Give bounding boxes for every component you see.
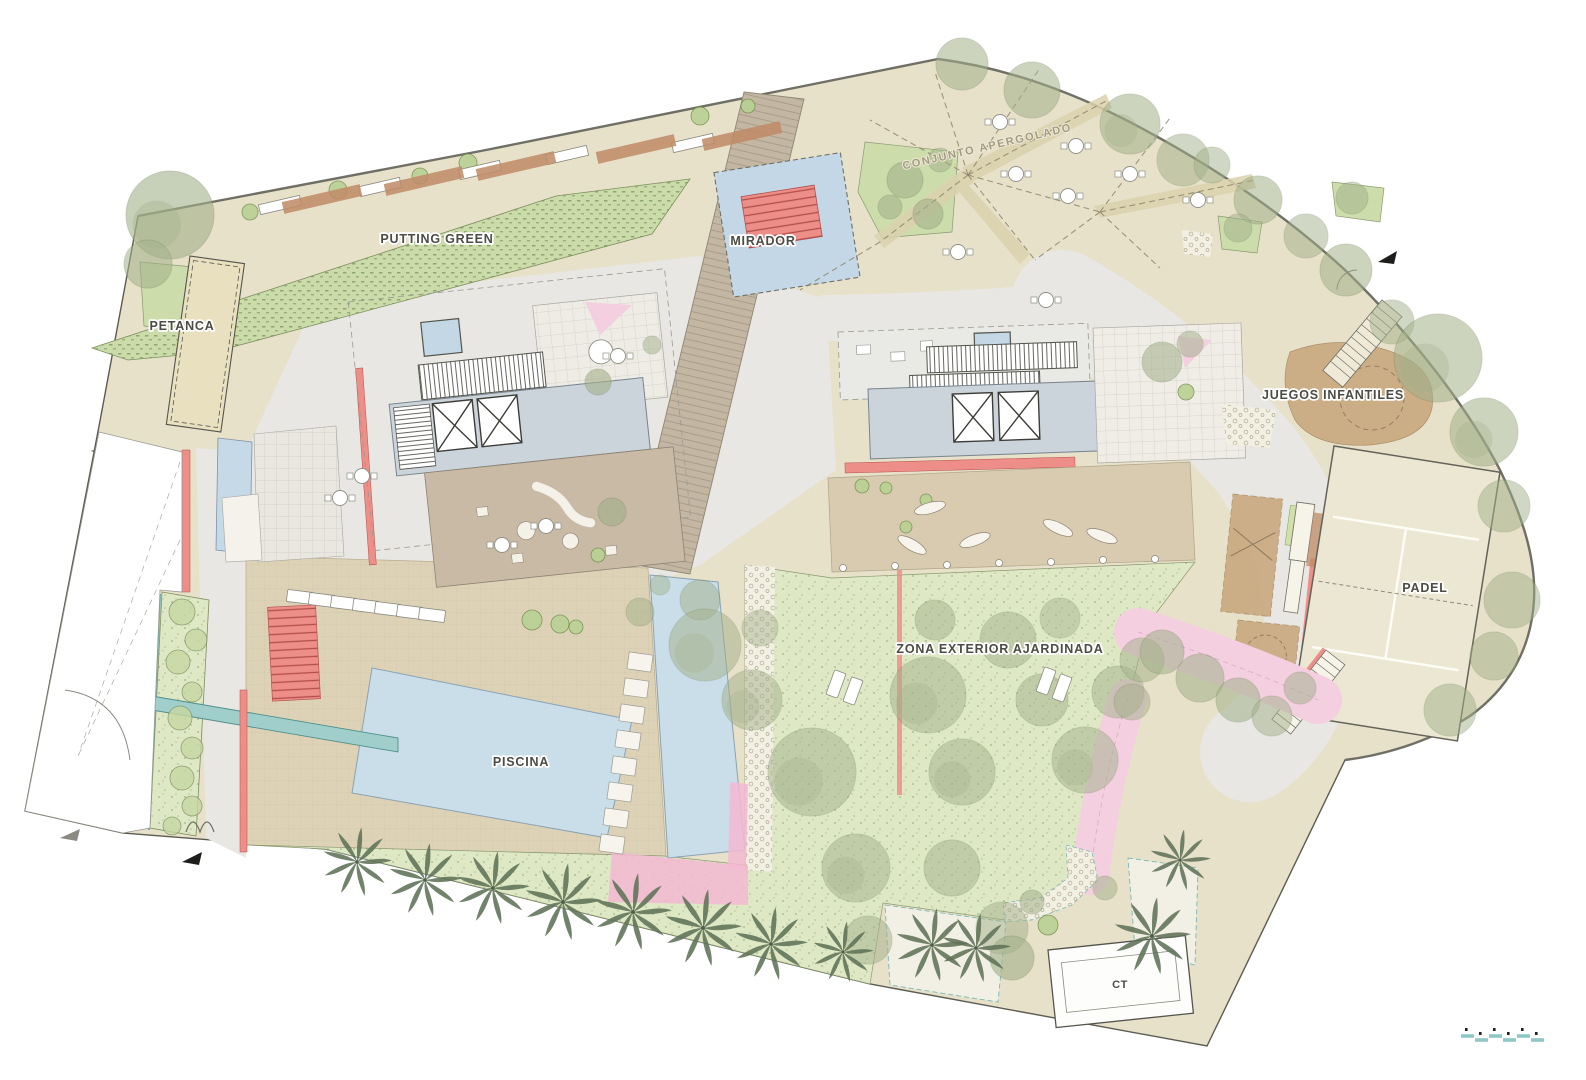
hedge-shrub [182,796,202,816]
palm-trunk [930,943,934,947]
hedge-shrub [163,817,181,835]
tree-canopy [878,195,902,219]
entrance-arrow-grey [60,829,80,841]
hedge-shrub [181,737,203,759]
building1-west-terrace-grid [254,426,344,562]
chair [1077,193,1083,199]
table [1191,193,1206,208]
chair [603,353,609,359]
label-ct: CT [1112,979,1128,991]
tree-canopy [980,612,1036,668]
gravel-patch [1182,230,1213,257]
chair [1009,119,1015,125]
tree-canopy [1484,572,1540,628]
tree-canopy [1470,632,1518,680]
chair [349,495,355,501]
tree-canopy [1478,480,1530,532]
tree-canopy-inner [1057,749,1093,785]
tree-canopy [915,600,955,640]
label-mirador: MIRADOR [730,234,795,248]
pergola-post [840,565,847,572]
palm-trunk [701,926,705,930]
scale-tick [1465,1028,1468,1031]
chair [1053,193,1059,199]
label-juegos-infantiles: JUEGOS INFANTILES [1262,388,1404,402]
scale-dash [1531,1038,1544,1042]
chair [1001,171,1007,177]
bush [855,479,869,493]
tree-canopy [936,38,988,90]
stepping-stone [611,756,637,776]
label-petanca: PETANCA [149,319,214,333]
tree-canopy [1424,684,1476,736]
bush [691,107,709,125]
chair [371,473,377,479]
chair [325,495,331,501]
chair [511,542,517,548]
tree-canopy [1093,876,1117,900]
entrance-arrow-black [182,852,202,865]
tree-canopy [1194,147,1230,183]
scale-dash [1461,1034,1474,1038]
table [611,349,626,364]
chair [487,542,493,548]
chair [1025,171,1031,177]
tree-canopy-inner [727,690,760,723]
hedge-shrub [182,682,202,702]
table [951,245,966,260]
palm-trunk [491,886,495,890]
tree-canopy-inner [1401,343,1449,391]
tree-canopy-inner [1455,421,1492,458]
stepping-stone [627,652,653,672]
tree-canopy [1320,244,1372,296]
gravel-patch [1222,404,1276,448]
table [1061,189,1076,204]
label-putting-green: PUTTING GREEN [380,232,493,246]
bush [242,204,258,220]
hedge-shrub [166,650,190,674]
tree-canopy [585,369,611,395]
table [355,469,370,484]
tree-canopy [598,498,626,526]
bush [522,610,542,630]
tree-canopy [1004,62,1060,118]
tree-canopy [124,240,172,288]
bush [569,620,583,634]
tree-canopy [924,840,980,896]
tree-canopy [990,936,1034,980]
tree-canopy-inner [934,761,970,797]
tree-canopy-inner [775,757,823,805]
site-plan-page: PUTTING GREEN MIRADOR PETANCA CONJUNTO A… [0,0,1586,1080]
pergola-post [892,563,899,570]
chair [347,473,353,479]
chair [1031,297,1037,303]
bush [900,521,912,533]
palm-trunk [1150,934,1154,938]
chair [1055,297,1061,303]
table [333,491,348,506]
scale-tick [1493,1028,1496,1031]
tree-canopy [650,575,670,595]
palm-trunk [842,951,845,954]
path-north-connector [826,306,1066,318]
chair [1061,143,1067,149]
chair [943,249,949,255]
tree-canopy [1252,696,1292,736]
chair [1139,171,1145,177]
tree-canopy-inner [1105,114,1138,147]
table [993,115,1008,130]
table [1039,293,1054,308]
hedge-shrub [170,766,194,790]
scale-marks [1461,1028,1544,1042]
table [1009,167,1024,182]
stepping-stone [599,834,625,854]
stepping-stone [615,730,641,750]
tree-canopy [626,598,654,626]
palm-trunk [423,878,427,882]
pergola-post [944,562,951,569]
chair [1183,197,1189,203]
tree-canopy [1177,331,1203,357]
pergola-post [996,560,1003,567]
bush [551,615,569,633]
site-plan-drawing: PUTTING GREEN MIRADOR PETANCA CONJUNTO A… [0,0,1586,1080]
tree-canopy [1284,672,1316,704]
tree-canopy [1140,630,1184,674]
scale-tick [1535,1032,1538,1035]
table [495,538,510,553]
tree-canopy [1020,890,1044,914]
stepping-stone [603,808,629,828]
stepping-stone [623,678,649,698]
tree-canopy-inner [896,682,938,724]
label-padel: PADEL [1402,581,1447,595]
chair [531,523,537,529]
stepping-stone [607,782,633,802]
bush [1038,915,1058,935]
table [1069,139,1084,154]
tree-canopy [643,336,661,354]
chair [1115,171,1121,177]
label-piscina: PISCINA [493,755,549,769]
hedge-shrub [185,629,207,651]
pergola-post [1048,559,1055,566]
scale-tick [1479,1032,1482,1035]
chair [627,353,633,359]
tree-canopy [742,610,778,646]
chair [985,119,991,125]
tree-canopy [913,199,943,229]
hedge-shrub [169,599,195,625]
scale-tick [1521,1028,1524,1031]
palm-trunk [974,946,977,949]
tree-canopy [1114,684,1150,720]
mirador-platform [714,153,860,297]
table [1123,167,1138,182]
tree-canopy-inner [674,633,714,673]
building2-south-terrace [828,462,1195,572]
chair [967,249,973,255]
pergola-post [1152,556,1159,563]
chair [1085,143,1091,149]
tree-canopy [1284,214,1328,258]
pink-pool-deck-strip [728,782,748,870]
palm-trunk [769,942,773,946]
building1-skylight [421,319,462,357]
pergola-post [1100,557,1107,564]
bush [880,482,892,494]
palm-trunk [1179,859,1182,862]
hedge-shrub [168,706,192,730]
bush [591,548,605,562]
entrance-arrow-ne [1378,251,1397,264]
palm-trunk [355,860,358,863]
tree-canopy [1040,598,1080,638]
bush [741,99,755,113]
scale-tick [1507,1032,1510,1035]
tree-canopy [1142,342,1182,382]
label-zona-exterior: ZONA EXTERIOR AJARDINADA [896,642,1103,656]
chair [555,523,561,529]
stepping-stone [619,704,645,724]
table [539,519,554,534]
chair [1207,197,1213,203]
scale-dash [1475,1038,1488,1042]
bush [1178,384,1194,400]
building1-sw-patio [222,494,262,562]
palm-trunk [631,910,635,914]
scale-dash [1503,1038,1516,1042]
tree-canopy [1336,182,1368,214]
scale-dash [1517,1034,1530,1038]
palm-trunk [561,900,565,904]
tree-canopy-inner [827,857,864,894]
scale-dash [1489,1034,1502,1038]
tree-canopy [1224,214,1252,242]
